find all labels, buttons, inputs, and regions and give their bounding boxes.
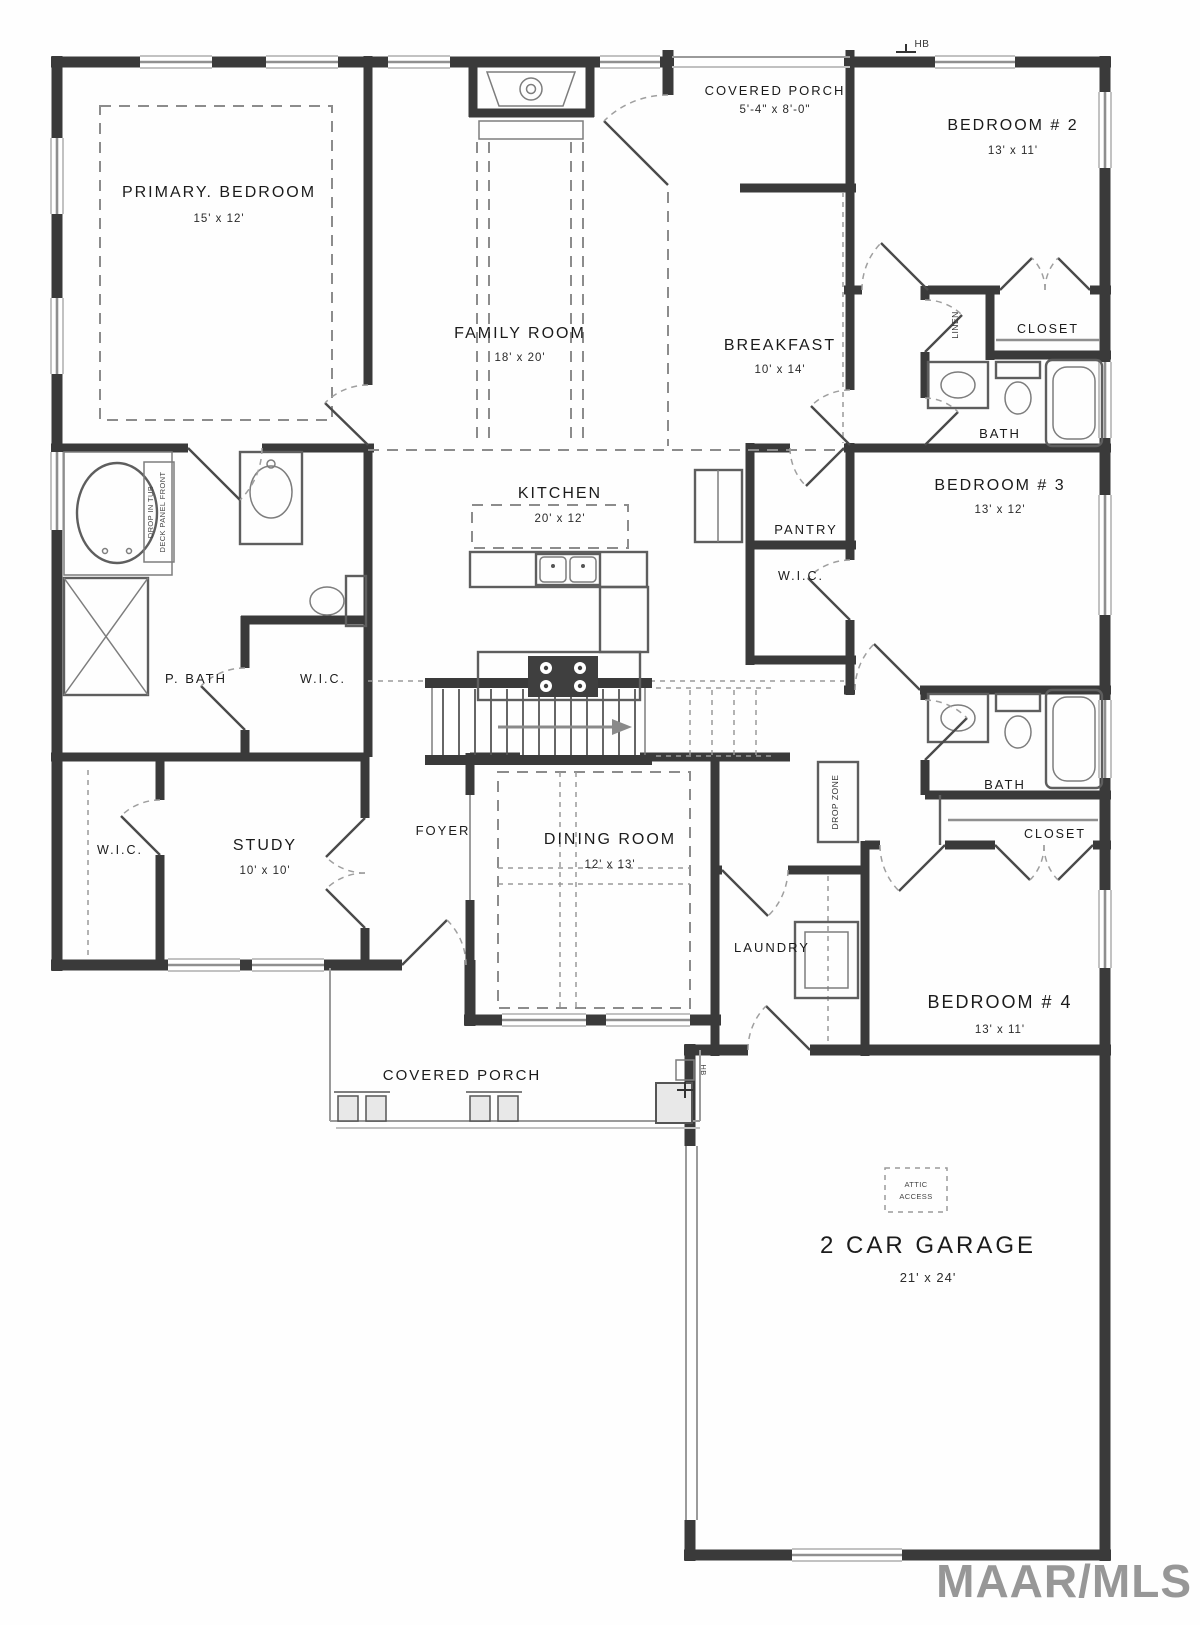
door-breakfast-hall (811, 390, 850, 445)
door-bedroom3 (855, 644, 920, 690)
room-label-wic-hall: W.I.C. (778, 569, 824, 583)
tub-icon (77, 463, 157, 563)
room-label-bedroom-3: BEDROOM # 3 (934, 477, 1065, 494)
room-label-bath-2: BATH (984, 777, 1026, 792)
label-attic-access-2: ACCESS (899, 1192, 932, 1201)
exterior-walls (51, 50, 1111, 1561)
label-hose-bib-top: HB (915, 39, 930, 50)
door-porch-top (604, 95, 668, 185)
washer-icon (795, 922, 858, 998)
floor-plan-drawing: PRIMARY. BEDROOM 15' x 12' FAMILY ROOM 1… (0, 0, 1200, 1625)
room-label-study: STUDY (233, 837, 297, 854)
room-label-bath-1: BATH (979, 426, 1021, 441)
room-label-covered-porch-bottom: COVERED PORCH (383, 1067, 542, 1084)
label-attic-access-1: ATTIC (904, 1180, 927, 1189)
label-tub-note-1: DROP IN TUB (146, 486, 155, 538)
fridge-icon (695, 470, 742, 542)
label-hose-bib-bottom: HB (699, 1064, 708, 1075)
windows (50, 55, 1112, 1562)
room-label-pantry: PANTRY (774, 522, 838, 537)
label-closet-2: CLOSET (1024, 827, 1086, 841)
room-dims-primary-bedroom: 15' x 12' (193, 213, 244, 225)
room-dims-study: 10' x 10' (239, 865, 290, 877)
door-bedroom2 (862, 243, 928, 290)
room-dims-bedroom-2: 13' x 11' (988, 145, 1038, 157)
room-dims-family-room: 18' x 20' (494, 352, 545, 364)
sink-bowl-icon (570, 557, 596, 582)
room-label-kitchen: KITCHEN (518, 485, 602, 502)
shower-icon (64, 578, 148, 695)
porch-edges (330, 57, 850, 1128)
label-linen: LINEN (950, 311, 960, 339)
hose-bib-top-icon (896, 44, 916, 52)
tub-icon (1046, 360, 1102, 446)
toilet-icon (996, 694, 1040, 711)
attic-access (885, 1168, 947, 1212)
primary-bath-fixtures (64, 452, 366, 695)
door-bedroom4 (880, 845, 945, 891)
sink-bowl-icon (540, 557, 566, 582)
room-dims-garage: 21' x 24' (900, 1270, 957, 1285)
room-label-primary-bedroom: PRIMARY. BEDROOM (122, 184, 316, 201)
room-label-laundry: LAUNDRY (734, 940, 810, 955)
room-label-foyer: FOYER (416, 823, 471, 838)
room-label-garage: 2 CAR GARAGE (820, 1232, 1036, 1259)
door-study-double (326, 818, 365, 928)
room-dims-dining-room: 12' x 13' (584, 859, 635, 871)
room-label-bedroom-4: BEDROOM # 4 (927, 992, 1072, 1012)
range-icon (478, 652, 640, 700)
label-closet-1: CLOSET (1017, 322, 1079, 336)
fireplace-icon (469, 58, 594, 139)
room-label-family-room: FAMILY ROOM (454, 325, 586, 342)
room-label-bedroom-2: BEDROOM # 2 (947, 117, 1078, 134)
room-dims-breakfast: 10' x 14' (754, 364, 805, 376)
room-dims-kitchen: 20' x 12' (534, 513, 585, 525)
door-closet1-bifold (1000, 258, 1090, 290)
doors (121, 95, 1093, 1050)
room-dims-covered-porch-top: 5'-4" x 8'-0" (740, 104, 811, 116)
label-drop-zone: DROP ZONE (830, 775, 840, 830)
door-laundry (722, 870, 788, 916)
toilet-icon (996, 362, 1040, 378)
room-label-covered-porch-top: COVERED PORCH (705, 83, 846, 98)
floor-plan-page: PRIMARY. BEDROOM 15' x 12' FAMILY ROOM 1… (0, 0, 1200, 1625)
door-front (402, 920, 466, 965)
door-garage (748, 1006, 810, 1050)
vanity-sink-icon (928, 362, 988, 408)
door-primary-bath (188, 448, 262, 500)
watermark: MAAR/MLS (936, 1555, 1192, 1607)
door-bath1 (925, 398, 958, 445)
garage-door (686, 1146, 697, 1520)
room-label-p-wic: W.I.C. (300, 672, 346, 686)
door-pantry (790, 448, 844, 486)
room-dims-bedroom-3: 13' x 12' (974, 504, 1025, 516)
porch-posts (334, 1083, 692, 1123)
room-label-p-bath: P. BATH (165, 671, 227, 686)
room-label-breakfast: BREAKFAST (724, 337, 836, 354)
room-dims-bedroom-4: 13' x 11' (975, 1024, 1025, 1036)
vanity-sink-icon (240, 452, 302, 544)
room-label-wic-left: W.I.C. (97, 843, 143, 857)
bath2-fixtures (928, 690, 1102, 845)
kitchen-island (470, 505, 648, 652)
door-closet2-bifold (995, 845, 1093, 880)
room-label-dining-room: DINING ROOM (544, 831, 676, 848)
label-tub-note-2: DECK PANEL FRONT (158, 471, 167, 552)
